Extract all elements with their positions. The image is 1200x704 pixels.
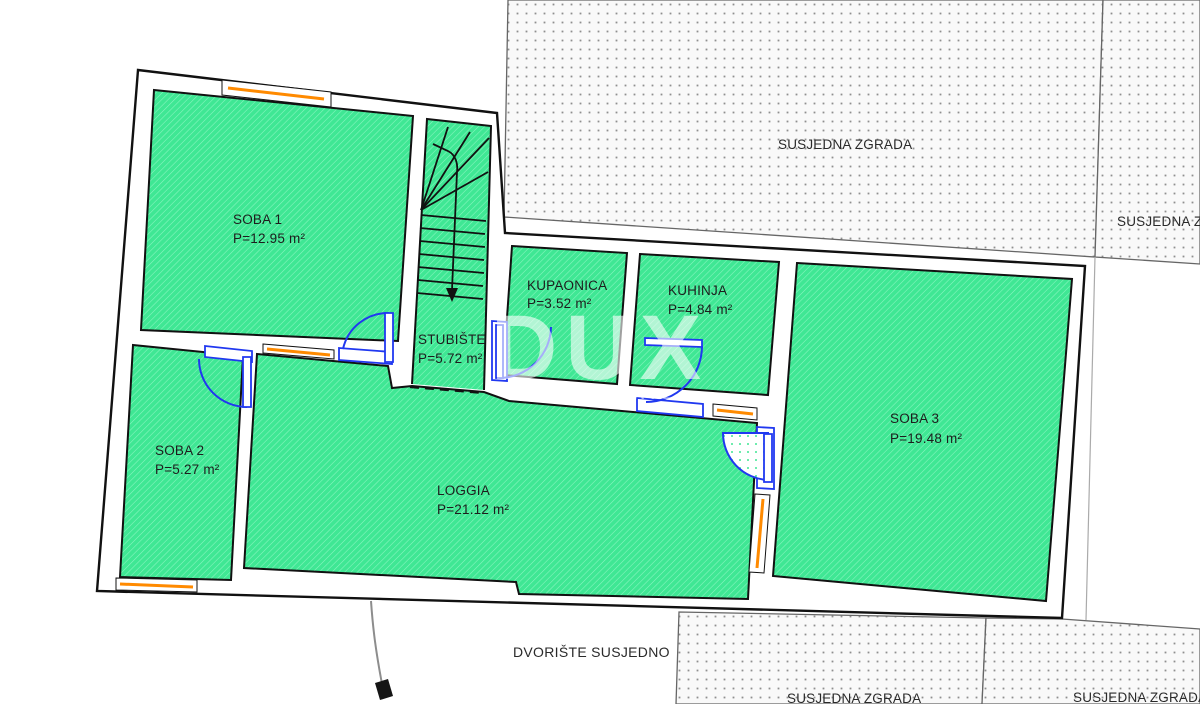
room-name-soba1: SOBA 1 (233, 212, 282, 227)
room-name-stubiste: STUBIŠTE (418, 332, 486, 347)
room-area-soba2: P=5.27 m² (155, 462, 220, 477)
door-leaf-soba2 (243, 357, 251, 407)
room-name-loggia: LOGGIA (437, 483, 490, 498)
room-name-soba3: SOBA 3 (890, 411, 939, 426)
neighbor-label-bottom-mid: SUSJEDNA ZGRADA (787, 691, 921, 704)
door-leaf-loggia-soba3 (764, 434, 772, 482)
parcel-boundary-line (1086, 257, 1095, 620)
room-name-kupaonica: KUPAONICA (527, 278, 607, 293)
room-name-kuhinja: KUHINJA (668, 283, 727, 298)
neighbor-label-right: SUSJEDNA Z (1117, 214, 1200, 229)
neighbor-label-bottom-right: SUSJEDNA ZGRADA (1073, 690, 1200, 704)
neighbor-label-top: SUSJEDNA ZGRADA (778, 137, 912, 152)
door-leaf-soba1 (385, 313, 393, 362)
room-area-stubiste: P=5.72 m² (418, 351, 483, 366)
utility-pole-marker (375, 679, 393, 700)
watermark-brand: DUX (491, 297, 709, 399)
neighbor-area-top (504, 0, 1103, 257)
utility-cable-line (371, 601, 382, 684)
room-name-soba2: SOBA 2 (155, 443, 204, 458)
watermark-tagline: REAL ESTATE (521, 386, 678, 403)
floorplan-screenshot: SOBA 1 P=12.95 m² SOBA 2 P=5.27 m² SOBA … (0, 0, 1200, 704)
floor-plan-canvas: SOBA 1 P=12.95 m² SOBA 2 P=5.27 m² SOBA … (0, 0, 1200, 704)
room-area-loggia: P=21.12 m² (437, 502, 509, 517)
room-area-soba3: P=19.48 m² (890, 431, 962, 446)
room-area-soba1: P=12.95 m² (233, 231, 305, 246)
courtyard-label: DVORIŠTE SUSJEDNO (513, 644, 670, 660)
watermark: DUX REAL ESTATE (491, 297, 709, 403)
